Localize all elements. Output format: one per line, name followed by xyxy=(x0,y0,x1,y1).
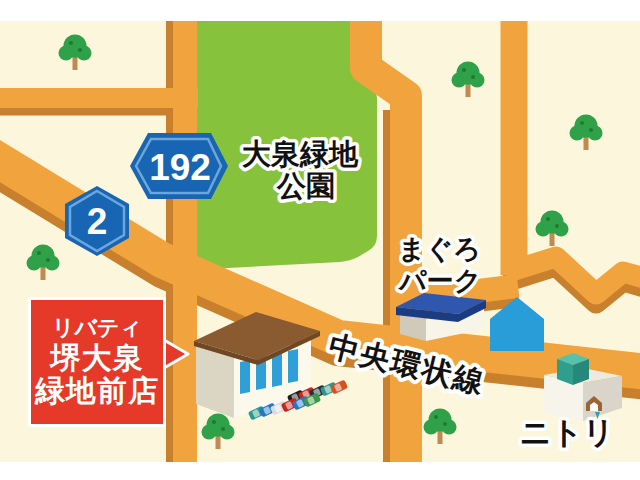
route-badge-192: 192 xyxy=(130,133,228,199)
top-margin xyxy=(0,0,640,21)
maguro-park-label-line1: まぐろ xyxy=(398,234,481,264)
callout-line3: 緑地前店 xyxy=(35,374,159,408)
callout-line2: 堺大泉 xyxy=(51,341,144,375)
callout-arrow-triangle xyxy=(164,340,188,368)
park-name-line1: 大泉緑地 xyxy=(242,138,359,170)
callout-line1: リバティ xyxy=(52,316,142,341)
bottom-margin xyxy=(0,462,640,480)
callout-arrow-icon xyxy=(163,336,193,372)
route-badge-2-number: 2 xyxy=(87,201,108,242)
store-window xyxy=(240,360,250,394)
route-badge-192-number: 192 xyxy=(149,147,211,188)
store-window xyxy=(272,353,282,387)
store-callout: リバティ 堺大泉 緑地前店 xyxy=(28,297,166,427)
maguro-park-label-line2: パーク xyxy=(397,266,481,296)
nitori-label: ニトリ xyxy=(519,415,614,450)
map-canvas: 192 2 xyxy=(0,0,640,480)
store-window xyxy=(288,349,298,383)
park-name-line2: 公園 xyxy=(276,170,335,202)
